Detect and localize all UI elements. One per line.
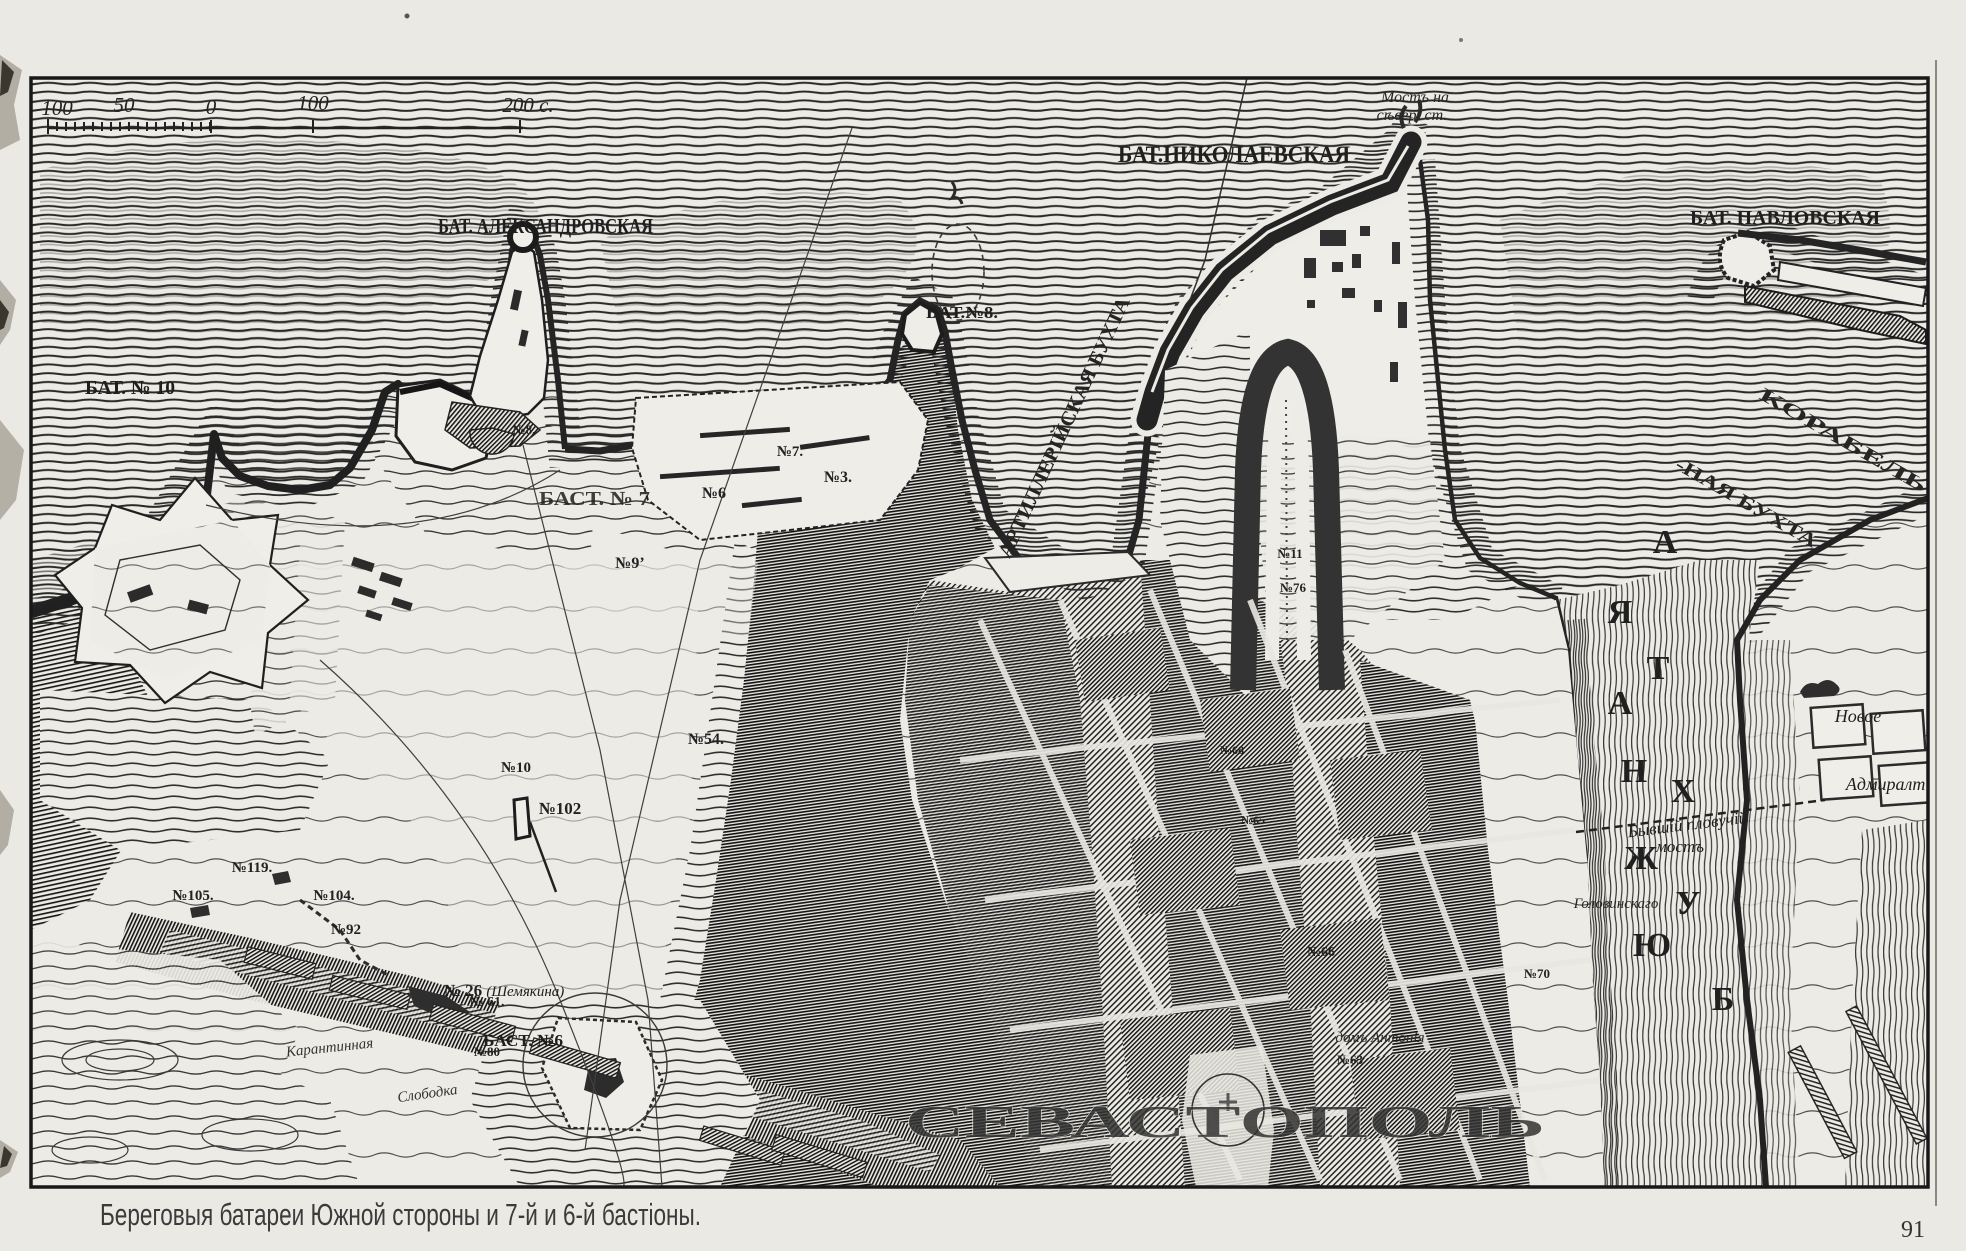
svg-text:Адмиралт.: Адмиралт.	[1845, 774, 1930, 794]
svg-text:СЕВАСТОПОЛЬ: СЕВАСТОПОЛЬ	[905, 1096, 1545, 1147]
svg-text:100: 100	[41, 96, 73, 120]
svg-text:0: 0	[206, 95, 217, 119]
svg-text:БАТ. ПАВЛОВСКАЯ: БАТ. ПАВЛОВСКАЯ	[1690, 207, 1881, 229]
svg-text:Ю: Ю	[1633, 927, 1671, 964]
svg-text:91: 91	[1901, 1217, 1925, 1243]
svg-text:Головинскаго: Головинскаго	[1573, 896, 1659, 912]
svg-text:А: А	[1653, 524, 1678, 561]
svg-text:100: 100	[297, 91, 329, 115]
svg-text:№8.: №8.	[513, 422, 536, 437]
svg-text:№76: №76	[1280, 580, 1307, 595]
svg-text:№68: №68	[1220, 743, 1244, 757]
svg-text:№92: №92	[331, 922, 361, 938]
svg-text:Х: Х	[1671, 773, 1696, 810]
svg-text:№66: №66	[1307, 945, 1335, 960]
svg-text:Я: Я	[1608, 594, 1633, 631]
svg-text:А: А	[1608, 685, 1633, 722]
svg-text:№119.: №119.	[232, 860, 273, 876]
svg-text:БАТ.№8.: БАТ.№8.	[926, 303, 998, 322]
svg-text:№80: №80	[474, 1044, 500, 1059]
svg-text:200 с.: 200 с.	[502, 93, 553, 117]
svg-text:№63: №63	[1337, 1052, 1364, 1067]
svg-text:№3.: №3.	[824, 469, 852, 486]
svg-text:№11: №11	[1277, 546, 1302, 561]
svg-text:Новое: Новое	[1834, 706, 1882, 726]
svg-text:сѣвер. ст.: сѣвер. ст.	[1377, 107, 1448, 124]
svg-text:БАТ. № 10: БАТ. № 10	[85, 377, 175, 399]
svg-text:Т: Т	[1647, 650, 1670, 687]
svg-text:Ж: Ж	[1624, 840, 1658, 877]
svg-text:У: У	[1676, 885, 1701, 922]
svg-text:№104.: №104.	[313, 888, 355, 904]
svg-text:50: 50	[114, 93, 136, 117]
svg-text:Н: Н	[1621, 753, 1647, 790]
svg-text:№65: №65	[1241, 813, 1265, 827]
svg-text:Б: Б	[1712, 981, 1734, 1018]
svg-text:№9ʼ: №9ʼ	[615, 555, 644, 572]
svg-text:№102: №102	[539, 799, 582, 818]
svg-text:№105.: №105.	[172, 888, 214, 904]
svg-text:БАСТ. № 7: БАСТ. № 7	[539, 488, 650, 510]
svg-text:№ 26 (Шемякина): № 26 (Шемякина)	[444, 981, 565, 1000]
svg-text:БАТ. АЛЕКСАНДРОВСКАЯ: БАТ. АЛЕКСАНДРОВСКАЯ	[438, 214, 653, 238]
svg-text:мостъ: мостъ	[1655, 837, 1704, 856]
svg-text:Мостъ на: Мостъ на	[1380, 89, 1449, 106]
svg-text:№6: №6	[702, 485, 726, 502]
svg-text:БАТ.НИКОЛАЕВСКАЯ: БАТ.НИКОЛАЕВСКАЯ	[1118, 142, 1350, 167]
svg-text:№7.: №7.	[777, 444, 804, 460]
svg-text:№10: №10	[501, 760, 531, 776]
svg-text:домъ Антонія: домъ Антонія	[1335, 1030, 1424, 1046]
svg-text:Береговыя батареи Южной сторон: Береговыя батареи Южной стороны и 7-й и …	[100, 1197, 701, 1232]
svg-text:№70: №70	[1524, 966, 1550, 981]
svg-text:№54.: №54.	[688, 731, 724, 748]
